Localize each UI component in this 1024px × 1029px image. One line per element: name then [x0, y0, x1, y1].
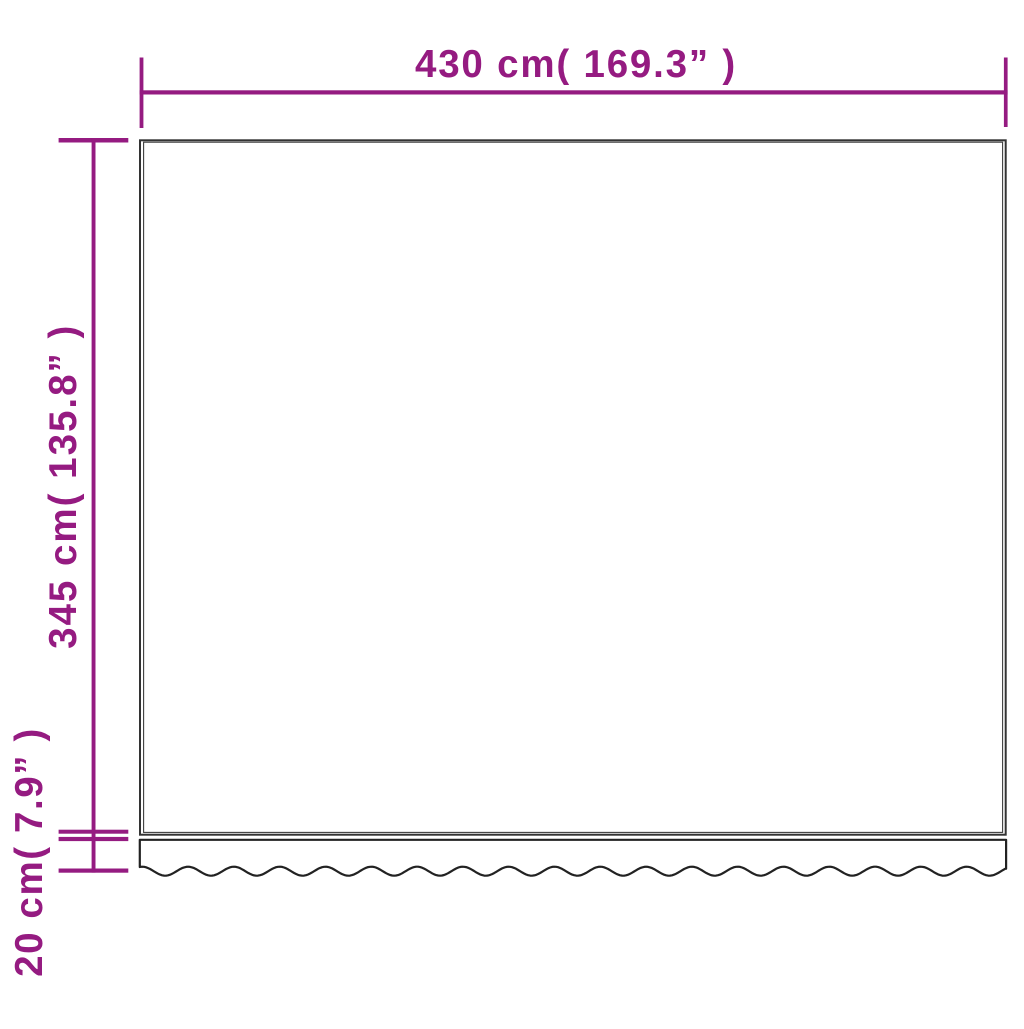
svg-text:430 cm( 169.3” ): 430 cm( 169.3” ) [415, 43, 737, 86]
svg-text:345 cm( 135.8” ): 345 cm( 135.8” ) [42, 324, 85, 649]
svg-text:20 cm( 7.9” ): 20 cm( 7.9” ) [8, 727, 51, 977]
